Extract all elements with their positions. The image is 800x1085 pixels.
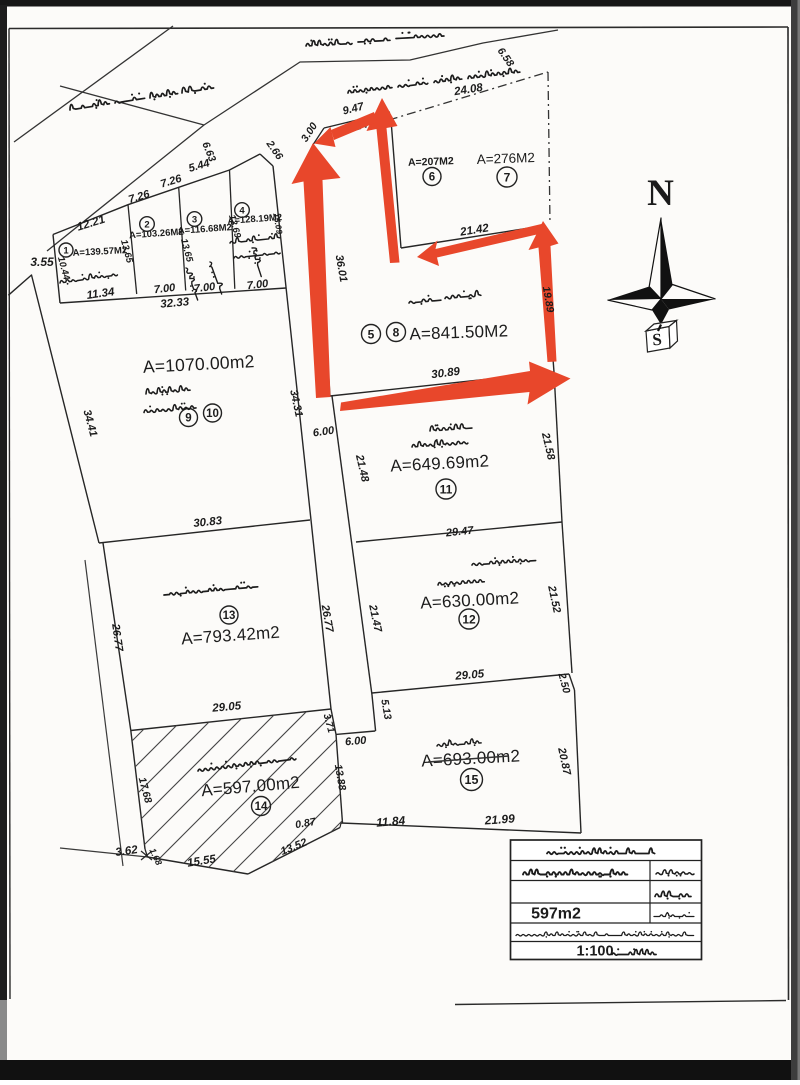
svg-text:5: 5 bbox=[368, 327, 375, 341]
svg-text:A=841.50M2: A=841.50M2 bbox=[409, 321, 508, 343]
svg-text:15: 15 bbox=[465, 773, 479, 787]
svg-text:1:100: 1:100 bbox=[576, 944, 613, 960]
svg-text:14: 14 bbox=[255, 801, 268, 813]
svg-text:1: 1 bbox=[63, 245, 69, 256]
svg-text:A=207M2: A=207M2 bbox=[408, 155, 454, 169]
svg-text:11: 11 bbox=[440, 482, 453, 496]
svg-text:N: N bbox=[647, 173, 674, 214]
svg-text:9: 9 bbox=[185, 413, 191, 425]
svg-text:10: 10 bbox=[206, 408, 219, 420]
svg-text:11.84: 11.84 bbox=[376, 813, 407, 830]
svg-text:597m2: 597m2 bbox=[531, 906, 581, 923]
svg-text:21.99: 21.99 bbox=[483, 811, 515, 827]
svg-text:13: 13 bbox=[223, 610, 236, 622]
svg-text:12: 12 bbox=[462, 612, 476, 626]
svg-text:6: 6 bbox=[429, 172, 435, 184]
svg-text:3.55: 3.55 bbox=[30, 255, 54, 269]
svg-text:7: 7 bbox=[504, 170, 511, 184]
svg-text:S: S bbox=[652, 330, 663, 350]
svg-text:A=276M2: A=276M2 bbox=[477, 150, 536, 167]
svg-text:32.33: 32.33 bbox=[160, 296, 190, 311]
svg-text:2: 2 bbox=[144, 219, 149, 230]
svg-text:8: 8 bbox=[393, 325, 400, 339]
svg-text:4: 4 bbox=[239, 205, 245, 216]
svg-text:6.00: 6.00 bbox=[345, 735, 368, 749]
svg-text:3: 3 bbox=[192, 214, 197, 225]
